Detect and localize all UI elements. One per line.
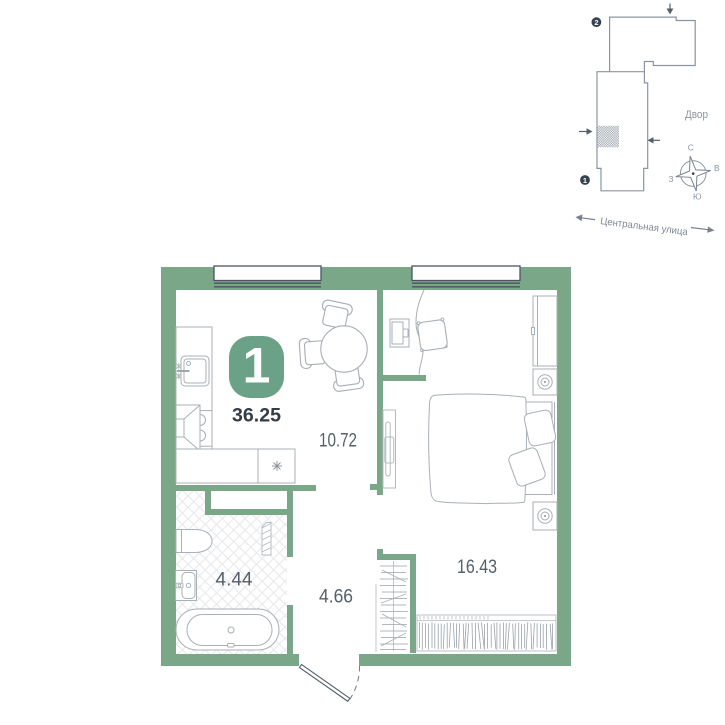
svg-text:10.72: 10.72 <box>319 430 357 451</box>
svg-text:1: 1 <box>583 176 587 185</box>
svg-text:4.44: 4.44 <box>216 570 253 591</box>
svg-text:Двор: Двор <box>685 109 708 121</box>
svg-text:2: 2 <box>594 18 598 27</box>
svg-text:З: З <box>668 174 673 184</box>
svg-text:36.25: 36.25 <box>232 405 281 426</box>
svg-text:С: С <box>688 143 694 153</box>
svg-text:В: В <box>714 163 720 173</box>
svg-text:16.43: 16.43 <box>457 557 497 578</box>
svg-text:Ю: Ю <box>693 192 702 202</box>
svg-text:1: 1 <box>243 338 271 394</box>
svg-text:4.66: 4.66 <box>319 587 353 608</box>
